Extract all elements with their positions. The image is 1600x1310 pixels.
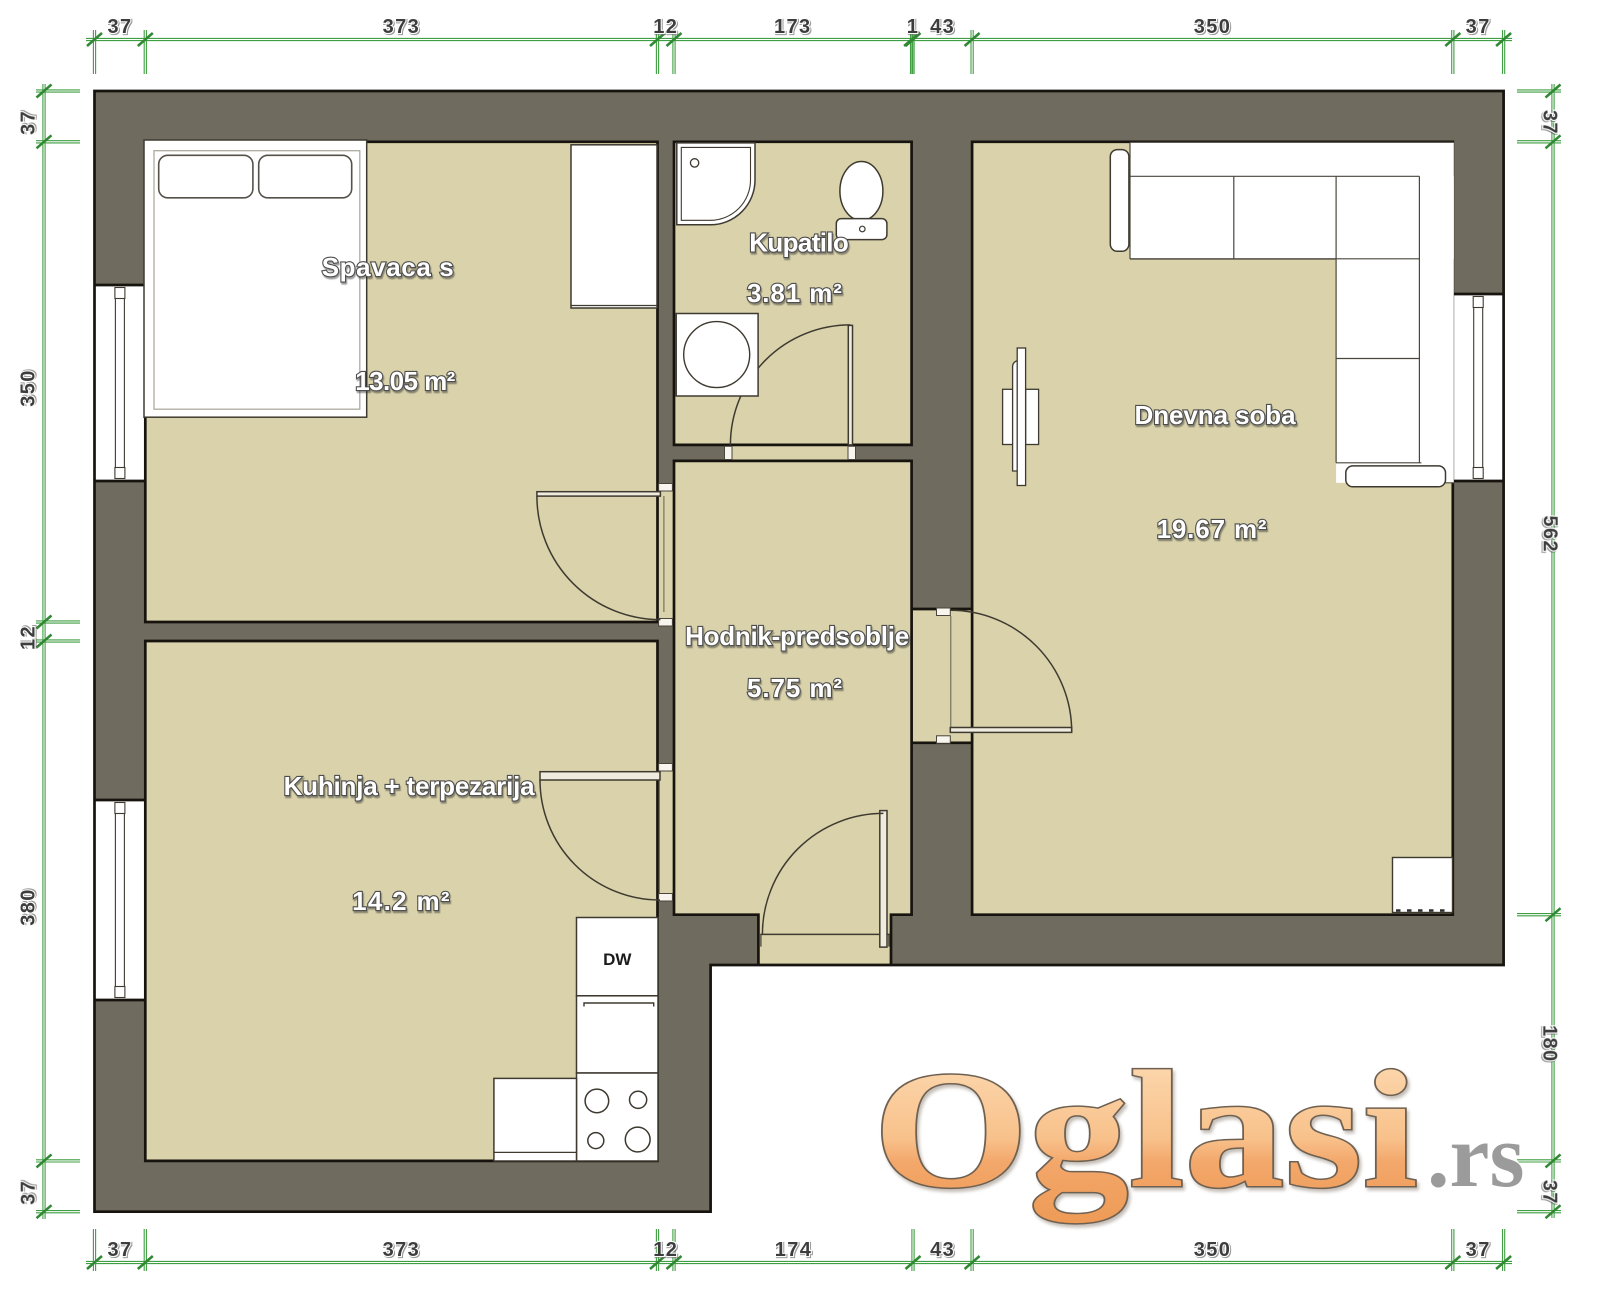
svg-text:174: 174	[775, 1239, 813, 1261]
svg-text:373: 373	[383, 1239, 421, 1261]
svg-text:37: 37	[18, 1180, 40, 1205]
svg-text:37: 37	[18, 110, 40, 135]
svg-text:350: 350	[18, 369, 40, 407]
svg-text:12: 12	[18, 625, 40, 650]
svg-text:1: 1	[907, 16, 920, 38]
svg-text:180: 180	[1539, 1025, 1561, 1063]
svg-text:37: 37	[1539, 1180, 1561, 1205]
svg-text:3.81 m²: 3.81 m²	[747, 278, 843, 308]
svg-text:19.67 m²: 19.67 m²	[1157, 514, 1268, 544]
svg-text:373: 373	[383, 16, 421, 38]
svg-text:43: 43	[930, 16, 955, 38]
svg-text:Spavaca s: Spavaca s	[322, 252, 455, 282]
svg-text:37: 37	[1539, 110, 1561, 135]
svg-text:12: 12	[653, 1239, 678, 1261]
svg-text:12: 12	[653, 16, 678, 38]
svg-text:Hodnik-predsoblje: Hodnik-predsoblje	[685, 621, 909, 651]
svg-text:14.2 m²: 14.2 m²	[352, 886, 451, 916]
svg-text:350: 350	[1194, 16, 1232, 38]
svg-text:DW: DW	[603, 950, 632, 969]
svg-text:13.05 m²: 13.05 m²	[355, 366, 455, 396]
svg-text:173: 173	[774, 16, 812, 38]
svg-text:37: 37	[1466, 1239, 1491, 1261]
svg-text:37: 37	[107, 1239, 132, 1261]
svg-text:37: 37	[107, 16, 132, 38]
svg-text:37: 37	[1466, 16, 1491, 38]
svg-text:Oglasi: Oglasi	[873, 1037, 1418, 1223]
svg-text:5.75 m²: 5.75 m²	[747, 673, 843, 703]
svg-text:Kupatilo: Kupatilo	[749, 228, 848, 258]
svg-text:562: 562	[1539, 515, 1561, 553]
svg-text:.rs: .rs	[1427, 1107, 1524, 1206]
svg-text:350: 350	[1194, 1239, 1232, 1261]
svg-text:Kuhinja + terpezarija: Kuhinja + terpezarija	[284, 771, 536, 801]
svg-text:43: 43	[930, 1239, 955, 1261]
svg-text:380: 380	[18, 888, 40, 926]
svg-text:Dnevna soba: Dnevna soba	[1135, 400, 1297, 430]
